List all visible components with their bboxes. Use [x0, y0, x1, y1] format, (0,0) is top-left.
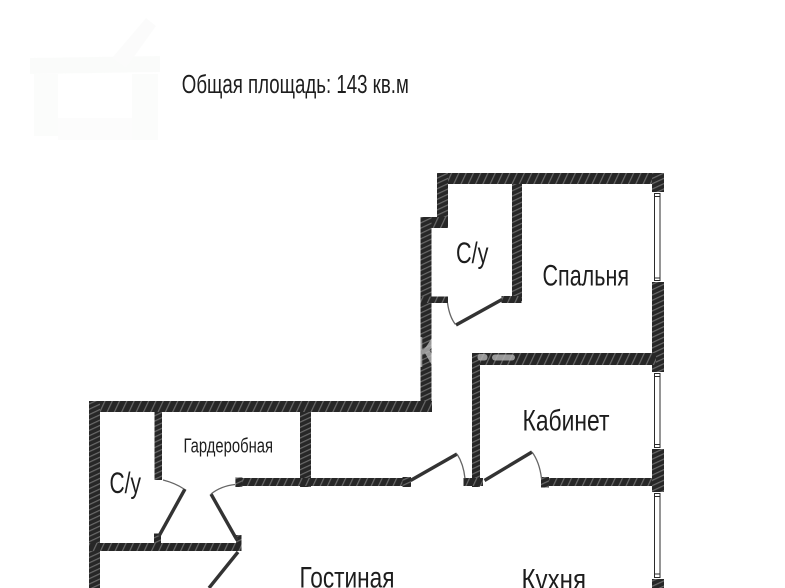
svg-text:Общая площадь: 143 кв.м: Общая площадь: 143 кв.м	[182, 71, 409, 99]
svg-text:Гардеробная: Гардеробная	[184, 435, 274, 458]
svg-text:С/у: С/у	[110, 467, 142, 500]
svg-text:С/у: С/у	[456, 237, 489, 270]
svg-text:Кухня: Кухня	[522, 564, 587, 588]
svg-text:Кабинет: Кабинет	[523, 405, 610, 438]
svg-text:Гостиная: Гостиная	[300, 562, 395, 588]
svg-text:Спальня: Спальня	[543, 260, 630, 293]
